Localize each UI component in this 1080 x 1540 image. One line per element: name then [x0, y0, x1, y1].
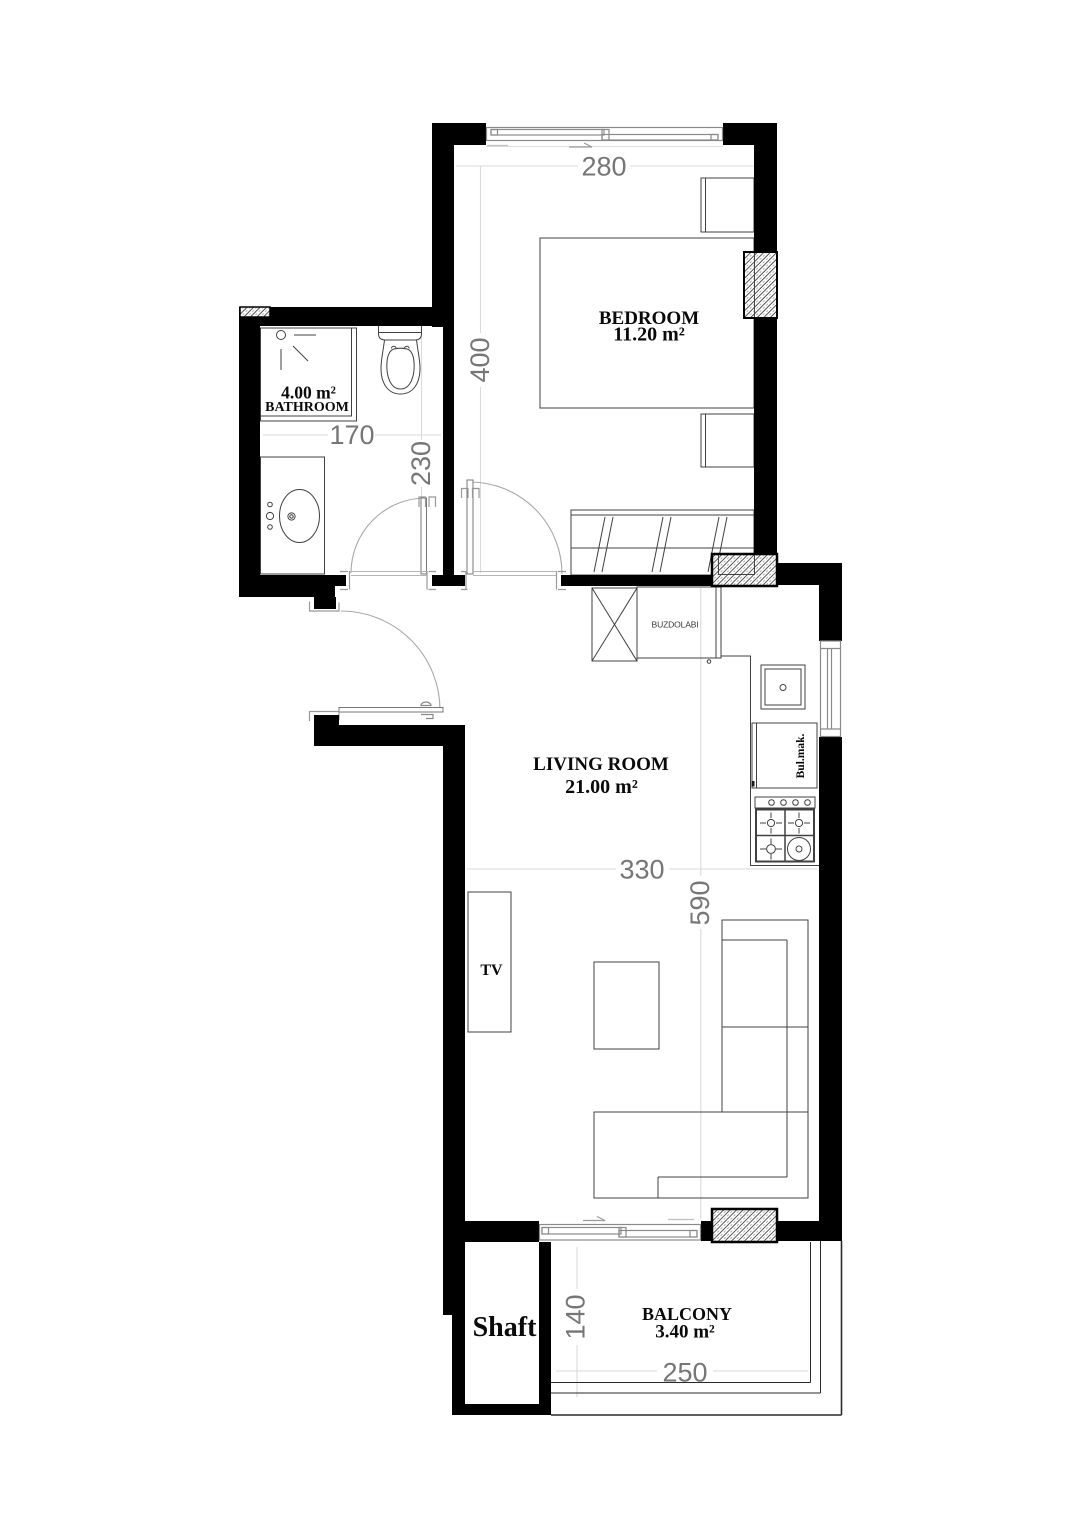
- svg-text:Bul.mak.: Bul.mak.: [795, 734, 807, 779]
- svg-text:590: 590: [685, 880, 715, 925]
- svg-text:BATHROOM: BATHROOM: [265, 400, 349, 415]
- svg-text:250: 250: [662, 1358, 707, 1388]
- svg-text:3.40 m²: 3.40 m²: [655, 1322, 715, 1343]
- svg-text:140: 140: [561, 1294, 591, 1339]
- svg-text:400: 400: [465, 337, 495, 382]
- svg-text:TV: TV: [480, 962, 503, 979]
- svg-text:11.20 m²: 11.20 m²: [613, 324, 685, 346]
- svg-text:170: 170: [329, 420, 374, 450]
- svg-text:330: 330: [619, 855, 664, 885]
- svg-text:230: 230: [406, 441, 436, 486]
- svg-text:LIVING ROOM: LIVING ROOM: [533, 754, 669, 775]
- svg-text:280: 280: [581, 152, 626, 182]
- svg-text:Shaft: Shaft: [473, 1312, 537, 1343]
- svg-text:21.00 m²: 21.00 m²: [565, 776, 638, 798]
- svg-text:BUZDOLABI: BUZDOLABI: [652, 620, 699, 630]
